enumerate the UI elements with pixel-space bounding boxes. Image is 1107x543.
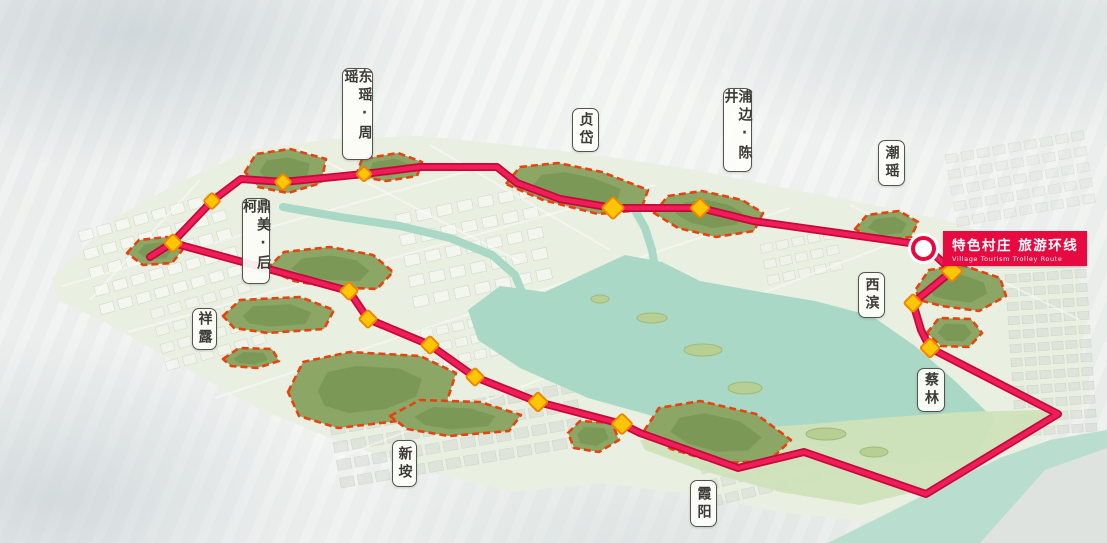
city-block bbox=[517, 444, 533, 456]
city-block bbox=[1070, 396, 1082, 405]
city-block bbox=[1085, 409, 1097, 418]
city-block bbox=[998, 176, 1011, 187]
lake-island bbox=[637, 313, 667, 323]
city-block bbox=[478, 433, 494, 445]
city-block bbox=[956, 216, 969, 227]
city-block bbox=[964, 166, 977, 177]
city-block bbox=[481, 451, 497, 463]
city-block bbox=[1011, 358, 1023, 367]
city-block bbox=[1054, 369, 1066, 378]
city-block bbox=[945, 153, 958, 164]
city-block bbox=[499, 448, 515, 460]
city-block bbox=[1055, 383, 1067, 392]
city-block bbox=[951, 184, 964, 195]
city-block bbox=[1012, 372, 1024, 381]
city-block bbox=[1081, 353, 1093, 362]
city-block bbox=[357, 473, 373, 485]
city-block bbox=[1040, 370, 1052, 379]
city-block bbox=[1084, 395, 1096, 404]
city-block bbox=[1077, 297, 1089, 306]
lake-island bbox=[860, 447, 888, 457]
city-block bbox=[1040, 136, 1053, 147]
village-label-pubian-chenjing: 浦边·陈井 bbox=[723, 88, 752, 172]
city-block bbox=[531, 424, 547, 436]
city-block bbox=[977, 147, 990, 158]
city-block bbox=[1032, 186, 1045, 197]
city-block bbox=[1056, 397, 1068, 406]
village-label-xianglu: 祥露 bbox=[192, 308, 217, 350]
city-block bbox=[1021, 301, 1033, 310]
city-block bbox=[372, 452, 388, 464]
city-block bbox=[1076, 283, 1088, 292]
lake-island bbox=[591, 295, 609, 303]
city-block bbox=[1022, 315, 1034, 324]
city-block bbox=[165, 358, 180, 371]
city-block bbox=[428, 460, 444, 472]
map-illustration bbox=[0, 0, 1107, 543]
city-block bbox=[1035, 202, 1048, 213]
city-block bbox=[1039, 356, 1051, 365]
city-block bbox=[1008, 142, 1021, 153]
city-block bbox=[985, 195, 998, 206]
city-block bbox=[333, 440, 349, 452]
city-block bbox=[1005, 274, 1017, 283]
lake-island bbox=[728, 382, 762, 394]
city-block bbox=[1067, 354, 1079, 363]
city-block bbox=[988, 210, 1001, 221]
city-block bbox=[1029, 171, 1042, 182]
city-block bbox=[1019, 273, 1031, 282]
city-block bbox=[1041, 384, 1053, 393]
city-block bbox=[463, 454, 479, 466]
city-block bbox=[78, 228, 94, 242]
city-block bbox=[1003, 208, 1016, 219]
city-block bbox=[1025, 357, 1037, 366]
city-block bbox=[995, 160, 1008, 171]
city-district bbox=[945, 131, 1095, 227]
city-block bbox=[1077, 162, 1090, 173]
city-block bbox=[1063, 298, 1075, 307]
city-block bbox=[375, 469, 391, 481]
city-block bbox=[1065, 326, 1077, 335]
city-block bbox=[543, 385, 559, 397]
village-label-xiayang: 霞阳 bbox=[690, 480, 717, 527]
village-label-dingmei-houke: 鼎美·后柯 bbox=[242, 198, 270, 284]
city-block bbox=[1016, 189, 1029, 200]
city-block bbox=[1083, 381, 1095, 390]
route-loop-marker-icon bbox=[911, 236, 936, 261]
city-block bbox=[1052, 341, 1064, 350]
city-block bbox=[969, 197, 982, 208]
city-block bbox=[1038, 342, 1050, 351]
city-block bbox=[1024, 343, 1036, 352]
city-block bbox=[1048, 285, 1060, 294]
city-block bbox=[972, 213, 985, 224]
city-block bbox=[1061, 270, 1073, 279]
route-legend-subtitle: Village Tourism Trolley Route bbox=[952, 255, 1078, 263]
city-block bbox=[1078, 311, 1090, 320]
city-block bbox=[1011, 158, 1024, 169]
city-block bbox=[1027, 155, 1040, 166]
city-block bbox=[336, 458, 352, 470]
city-block bbox=[1033, 272, 1045, 281]
city-block bbox=[1044, 426, 1056, 435]
city-block bbox=[1014, 173, 1027, 184]
city-block bbox=[1071, 131, 1084, 142]
city-block bbox=[1037, 328, 1049, 337]
city-block bbox=[953, 200, 966, 211]
route-legend-title: 特色村庄 旅游环线 bbox=[952, 234, 1078, 254]
city-block bbox=[1075, 269, 1087, 278]
city-block bbox=[1066, 340, 1078, 349]
city-block bbox=[1064, 181, 1077, 192]
city-block bbox=[948, 169, 961, 180]
city-block bbox=[1071, 410, 1083, 419]
city-block bbox=[552, 438, 568, 450]
city-block bbox=[1051, 199, 1064, 210]
city-block bbox=[1036, 314, 1048, 323]
city-block bbox=[1074, 146, 1087, 157]
city-block bbox=[1072, 424, 1084, 433]
city-block bbox=[1042, 152, 1055, 163]
city-block bbox=[1061, 165, 1074, 176]
city-block bbox=[1053, 355, 1065, 364]
city-block bbox=[961, 150, 974, 161]
city-block bbox=[1066, 196, 1079, 207]
city-block bbox=[1082, 367, 1094, 376]
city-block bbox=[1019, 205, 1032, 216]
city-block bbox=[1027, 385, 1039, 394]
city-block bbox=[1080, 339, 1092, 348]
city-block bbox=[1026, 371, 1038, 380]
lake-island bbox=[684, 344, 722, 356]
city-block bbox=[982, 179, 995, 190]
city-block bbox=[1050, 313, 1062, 322]
city-block bbox=[549, 421, 565, 433]
city-block bbox=[534, 441, 550, 453]
city-block bbox=[1082, 194, 1095, 205]
city-block bbox=[514, 427, 530, 439]
city-block bbox=[1086, 423, 1098, 432]
city-block bbox=[446, 457, 462, 469]
city-block bbox=[1048, 184, 1061, 195]
city-block bbox=[339, 476, 355, 488]
city-block bbox=[1058, 425, 1070, 434]
city-block bbox=[1024, 139, 1037, 150]
city-block bbox=[1079, 178, 1092, 189]
city-block bbox=[1058, 149, 1071, 160]
city-block bbox=[460, 436, 476, 448]
city-block bbox=[1062, 284, 1074, 293]
city-block bbox=[1047, 271, 1059, 280]
city-block bbox=[443, 439, 459, 451]
city-block bbox=[1051, 327, 1063, 336]
map-canvas: 东瑶·周瑶贞岱浦边·陈井潮瑶鼎美·后柯祥露西滨蔡林新垵霞阳 特色村庄 旅游环线 … bbox=[0, 0, 1107, 543]
village-label-xibin: 西滨 bbox=[858, 272, 885, 318]
city-block bbox=[1006, 288, 1018, 297]
city-block bbox=[1034, 286, 1046, 295]
city-block bbox=[1055, 133, 1068, 144]
city-block bbox=[1010, 344, 1022, 353]
village-label-xinan: 新垵 bbox=[392, 440, 417, 487]
lake-island bbox=[806, 428, 846, 440]
city-block bbox=[1014, 400, 1026, 409]
city-block bbox=[1069, 382, 1081, 391]
city-block bbox=[1009, 330, 1021, 339]
city-block bbox=[354, 455, 370, 467]
village-label-cailin: 蔡林 bbox=[917, 368, 945, 412]
city-block bbox=[1023, 329, 1035, 338]
city-block bbox=[1007, 302, 1019, 311]
city-block bbox=[979, 163, 992, 174]
city-block bbox=[966, 182, 979, 193]
village-label-dongyao-zhouyao: 东瑶·周瑶 bbox=[342, 68, 373, 160]
city-block bbox=[1079, 325, 1091, 334]
city-block bbox=[1068, 368, 1080, 377]
village-label-chaoyao: 潮瑶 bbox=[878, 140, 905, 186]
route-legend-box: 特色村庄 旅游环线 Village Tourism Trolley Route bbox=[943, 231, 1087, 266]
city-block bbox=[425, 442, 441, 454]
city-block bbox=[1001, 192, 1014, 203]
route-legend-banner: 特色村庄 旅游环线 Village Tourism Trolley Route bbox=[911, 231, 1087, 266]
city-block bbox=[1045, 168, 1058, 179]
city-block bbox=[1008, 316, 1020, 325]
village-label-zhendai: 贞岱 bbox=[572, 108, 599, 152]
city-block bbox=[992, 145, 1005, 156]
